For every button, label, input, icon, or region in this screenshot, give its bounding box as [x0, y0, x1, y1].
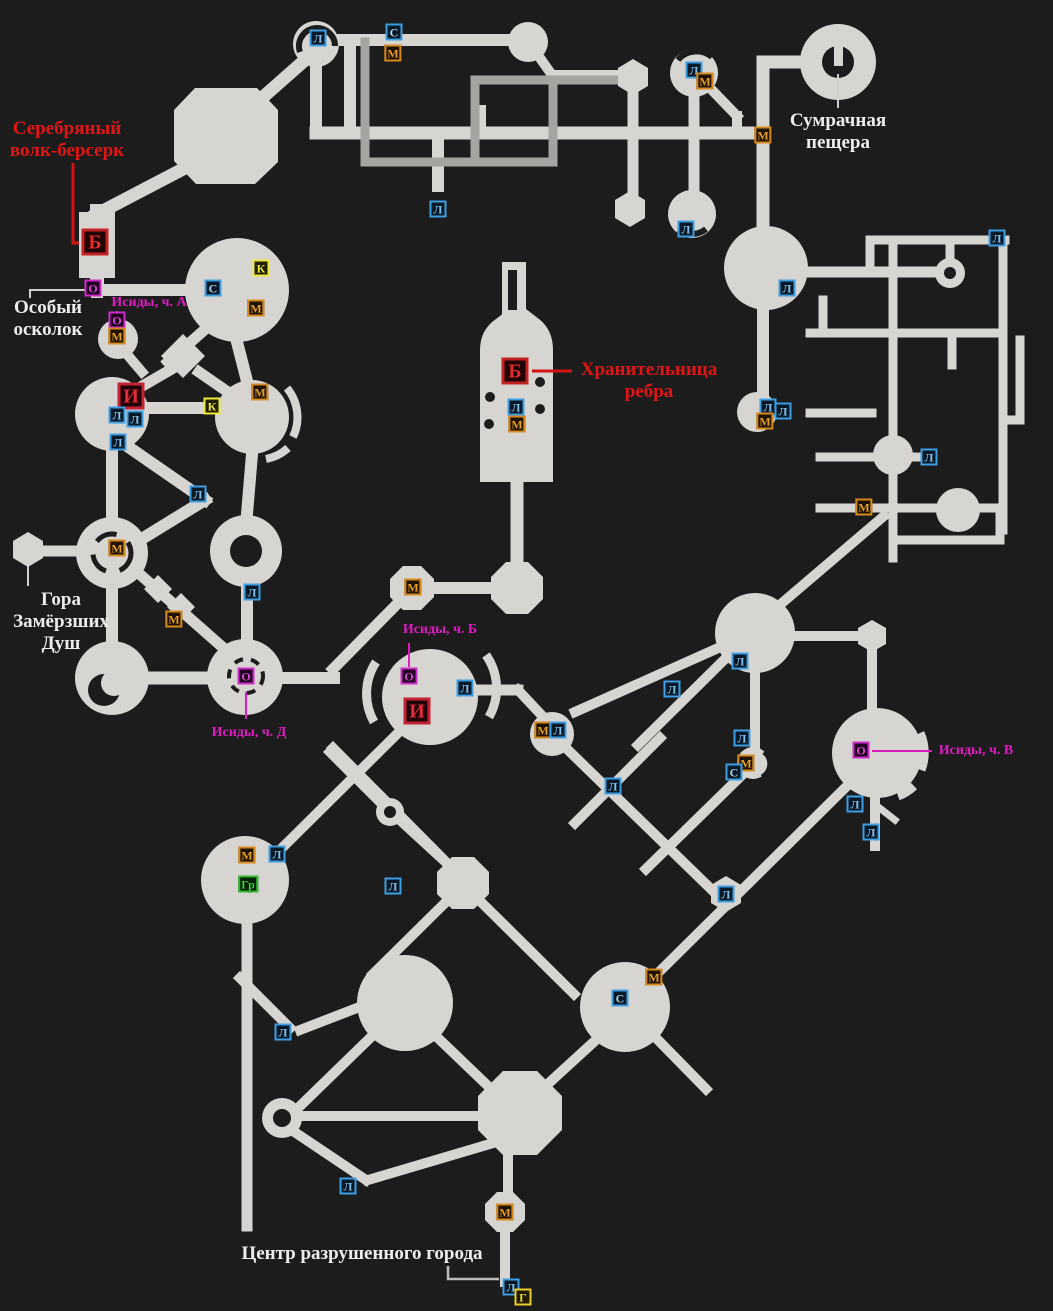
- game-map: ЛСМЛЛММЛБООМСКМЛЛИЛЛЛКМЛБЛМЛЛМЛММЛМОМОЛИ…: [0, 0, 1053, 1311]
- map-geometry: [0, 0, 1053, 1311]
